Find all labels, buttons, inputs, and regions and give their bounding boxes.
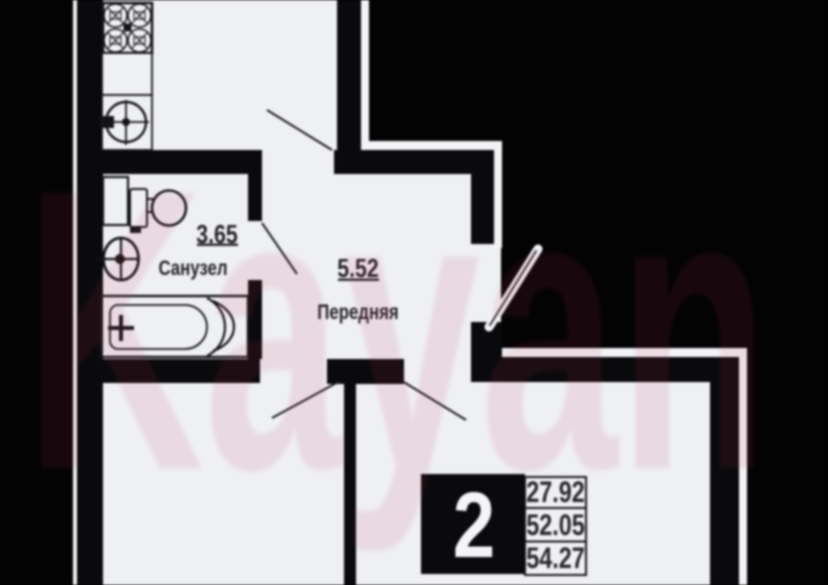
svg-text:Kayan: Kayan (25, 106, 769, 555)
